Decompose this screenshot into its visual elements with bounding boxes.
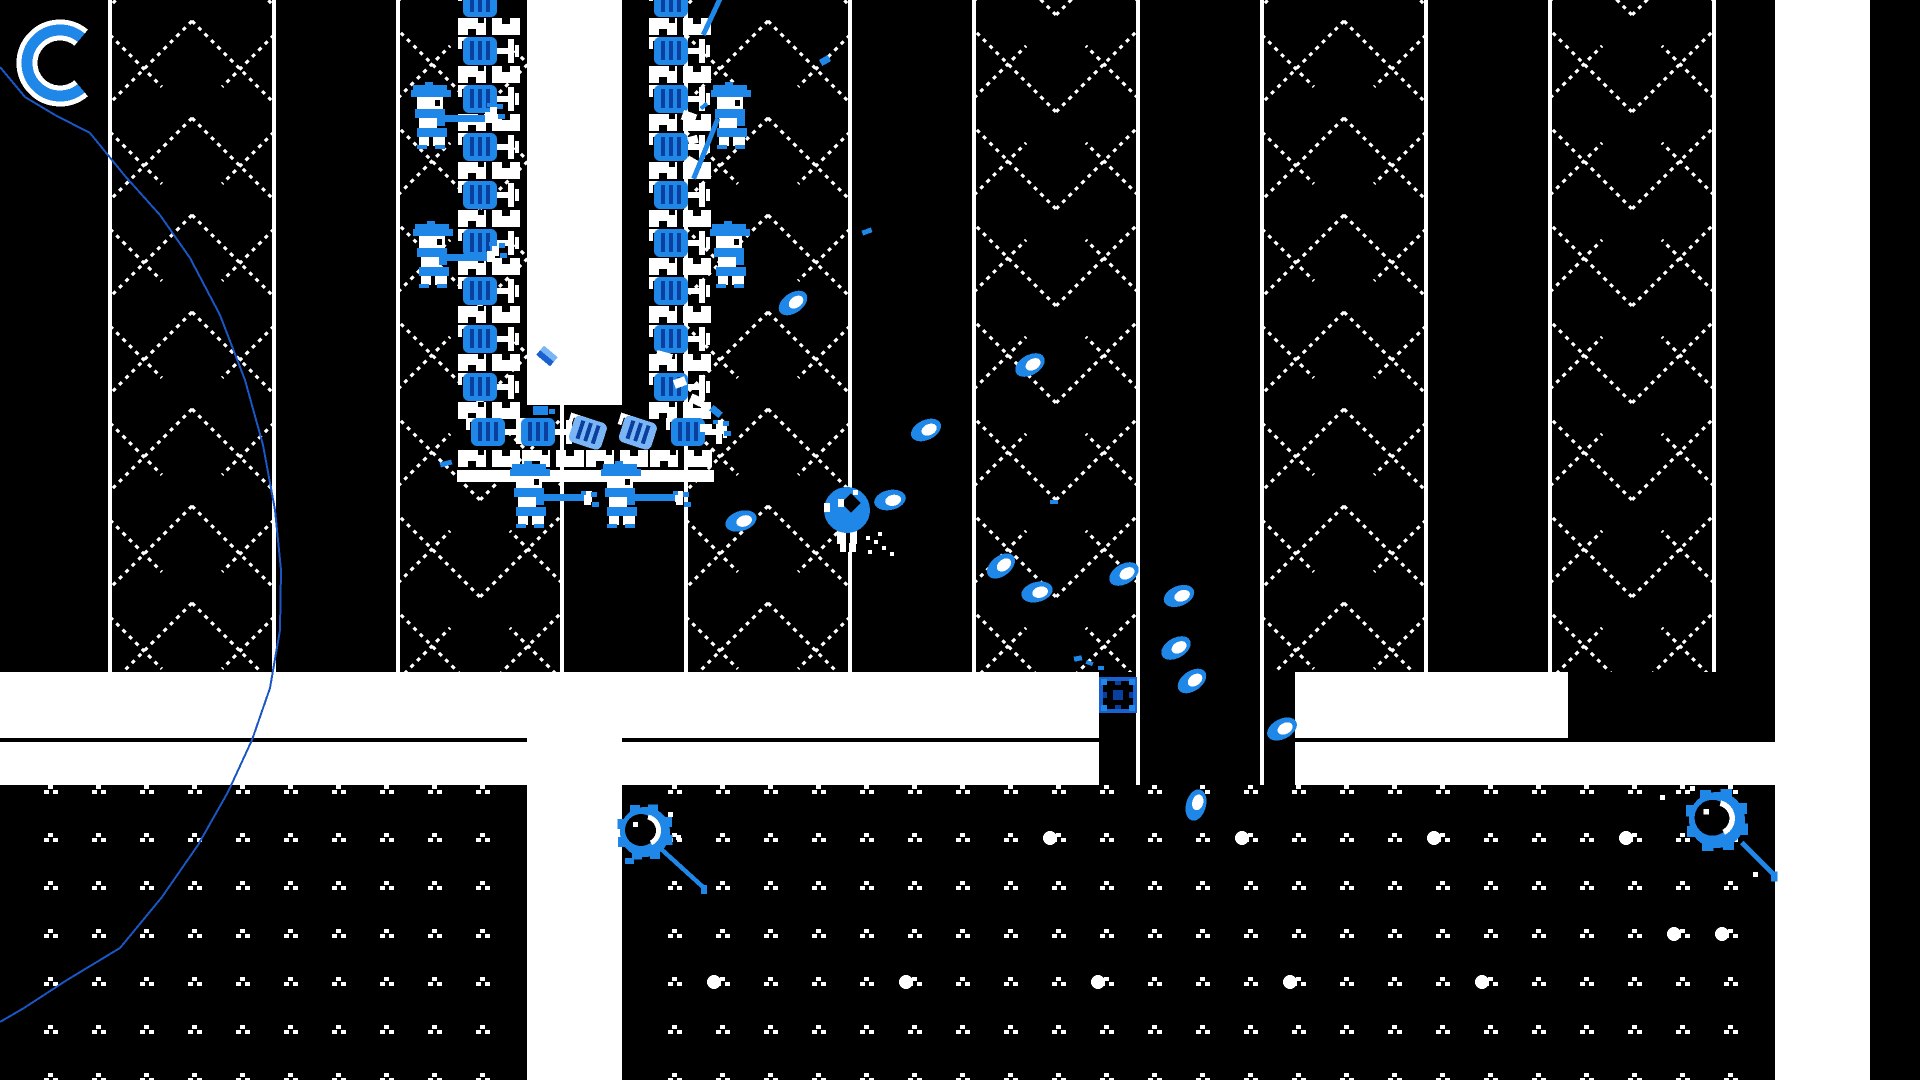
- ground-dot-large: [1043, 831, 1057, 845]
- turret-gun: [649, 85, 688, 113]
- fort-base-bar: [457, 470, 714, 482]
- wall-edge-line: [108, 0, 112, 672]
- ground-dot-large: [1715, 927, 1729, 941]
- turret-gun: [458, 181, 497, 209]
- wall-edge-line: [848, 0, 852, 672]
- turret-gun: [649, 229, 688, 257]
- ground-dot-large: [1235, 831, 1249, 845]
- debris-chunk: [700, 424, 712, 432]
- ground-dot-large: [1667, 927, 1681, 941]
- wall-edge-line: [972, 0, 976, 672]
- chevron-column: [1260, 0, 1428, 785]
- dust-pixel: [890, 552, 894, 556]
- turret-gun: [466, 418, 505, 446]
- spark-pixel: [1660, 795, 1665, 800]
- ground-dot-large: [1475, 975, 1489, 989]
- turret-gun: [458, 133, 497, 161]
- platform-row1: [1295, 672, 1568, 738]
- wall-edge-line: [1260, 0, 1264, 785]
- white-corridor: [527, 672, 622, 1080]
- wall-edge-line: [396, 0, 400, 672]
- turret-gun: [516, 418, 555, 446]
- game-viewport[interactable]: [0, 0, 1920, 1080]
- turret-gun: [649, 325, 688, 353]
- dust-pixel: [868, 550, 872, 554]
- turret-gun: [649, 277, 688, 305]
- chevron-column: [1548, 0, 1716, 672]
- wall-edge-line: [1712, 0, 1716, 672]
- ground-dot-large: [1619, 831, 1633, 845]
- ground-dot-large: [1091, 975, 1105, 989]
- spark-pixel: [676, 835, 681, 840]
- chevron-column: [972, 0, 1140, 785]
- debris-fleck: [549, 409, 555, 414]
- player-eye: [838, 499, 844, 507]
- turret-gun: [458, 373, 497, 401]
- spark-pixel: [1690, 786, 1695, 791]
- turret-gun: [458, 37, 497, 65]
- turret-gun: [649, 37, 688, 65]
- pickup-box-icon: [1099, 677, 1137, 713]
- turret-gun: [649, 133, 688, 161]
- debris-fleck: [1050, 500, 1058, 504]
- ground-dot-large: [899, 975, 913, 989]
- ground-dot-large: [707, 975, 721, 989]
- turret-gun: [458, 325, 497, 353]
- debris-fleck: [533, 406, 548, 415]
- ground-dot-large: [1427, 831, 1441, 845]
- wall-edge-line: [1548, 0, 1552, 672]
- fort-tower-wall: [527, 0, 622, 405]
- game-scene: [0, 0, 1920, 1080]
- wall-edge-line: [272, 0, 276, 672]
- ground-dot-large: [1283, 975, 1297, 989]
- turret-gun: [666, 418, 705, 446]
- turret-gun: [649, 181, 688, 209]
- chevron-column: [108, 0, 276, 672]
- dust-pixel: [882, 546, 886, 550]
- spark-pixel: [1753, 872, 1758, 877]
- dust-pixel: [866, 536, 870, 540]
- turret-gun: [458, 277, 497, 305]
- spark-pixel: [668, 812, 673, 817]
- dust-pixel: [874, 540, 878, 544]
- debris-fleck: [1098, 666, 1104, 670]
- white-corridor: [1775, 0, 1870, 1080]
- wall-edge-line: [1424, 0, 1428, 672]
- wall-edge-line: [1136, 0, 1140, 785]
- player-body: [824, 487, 870, 533]
- dust-pixel: [878, 532, 882, 536]
